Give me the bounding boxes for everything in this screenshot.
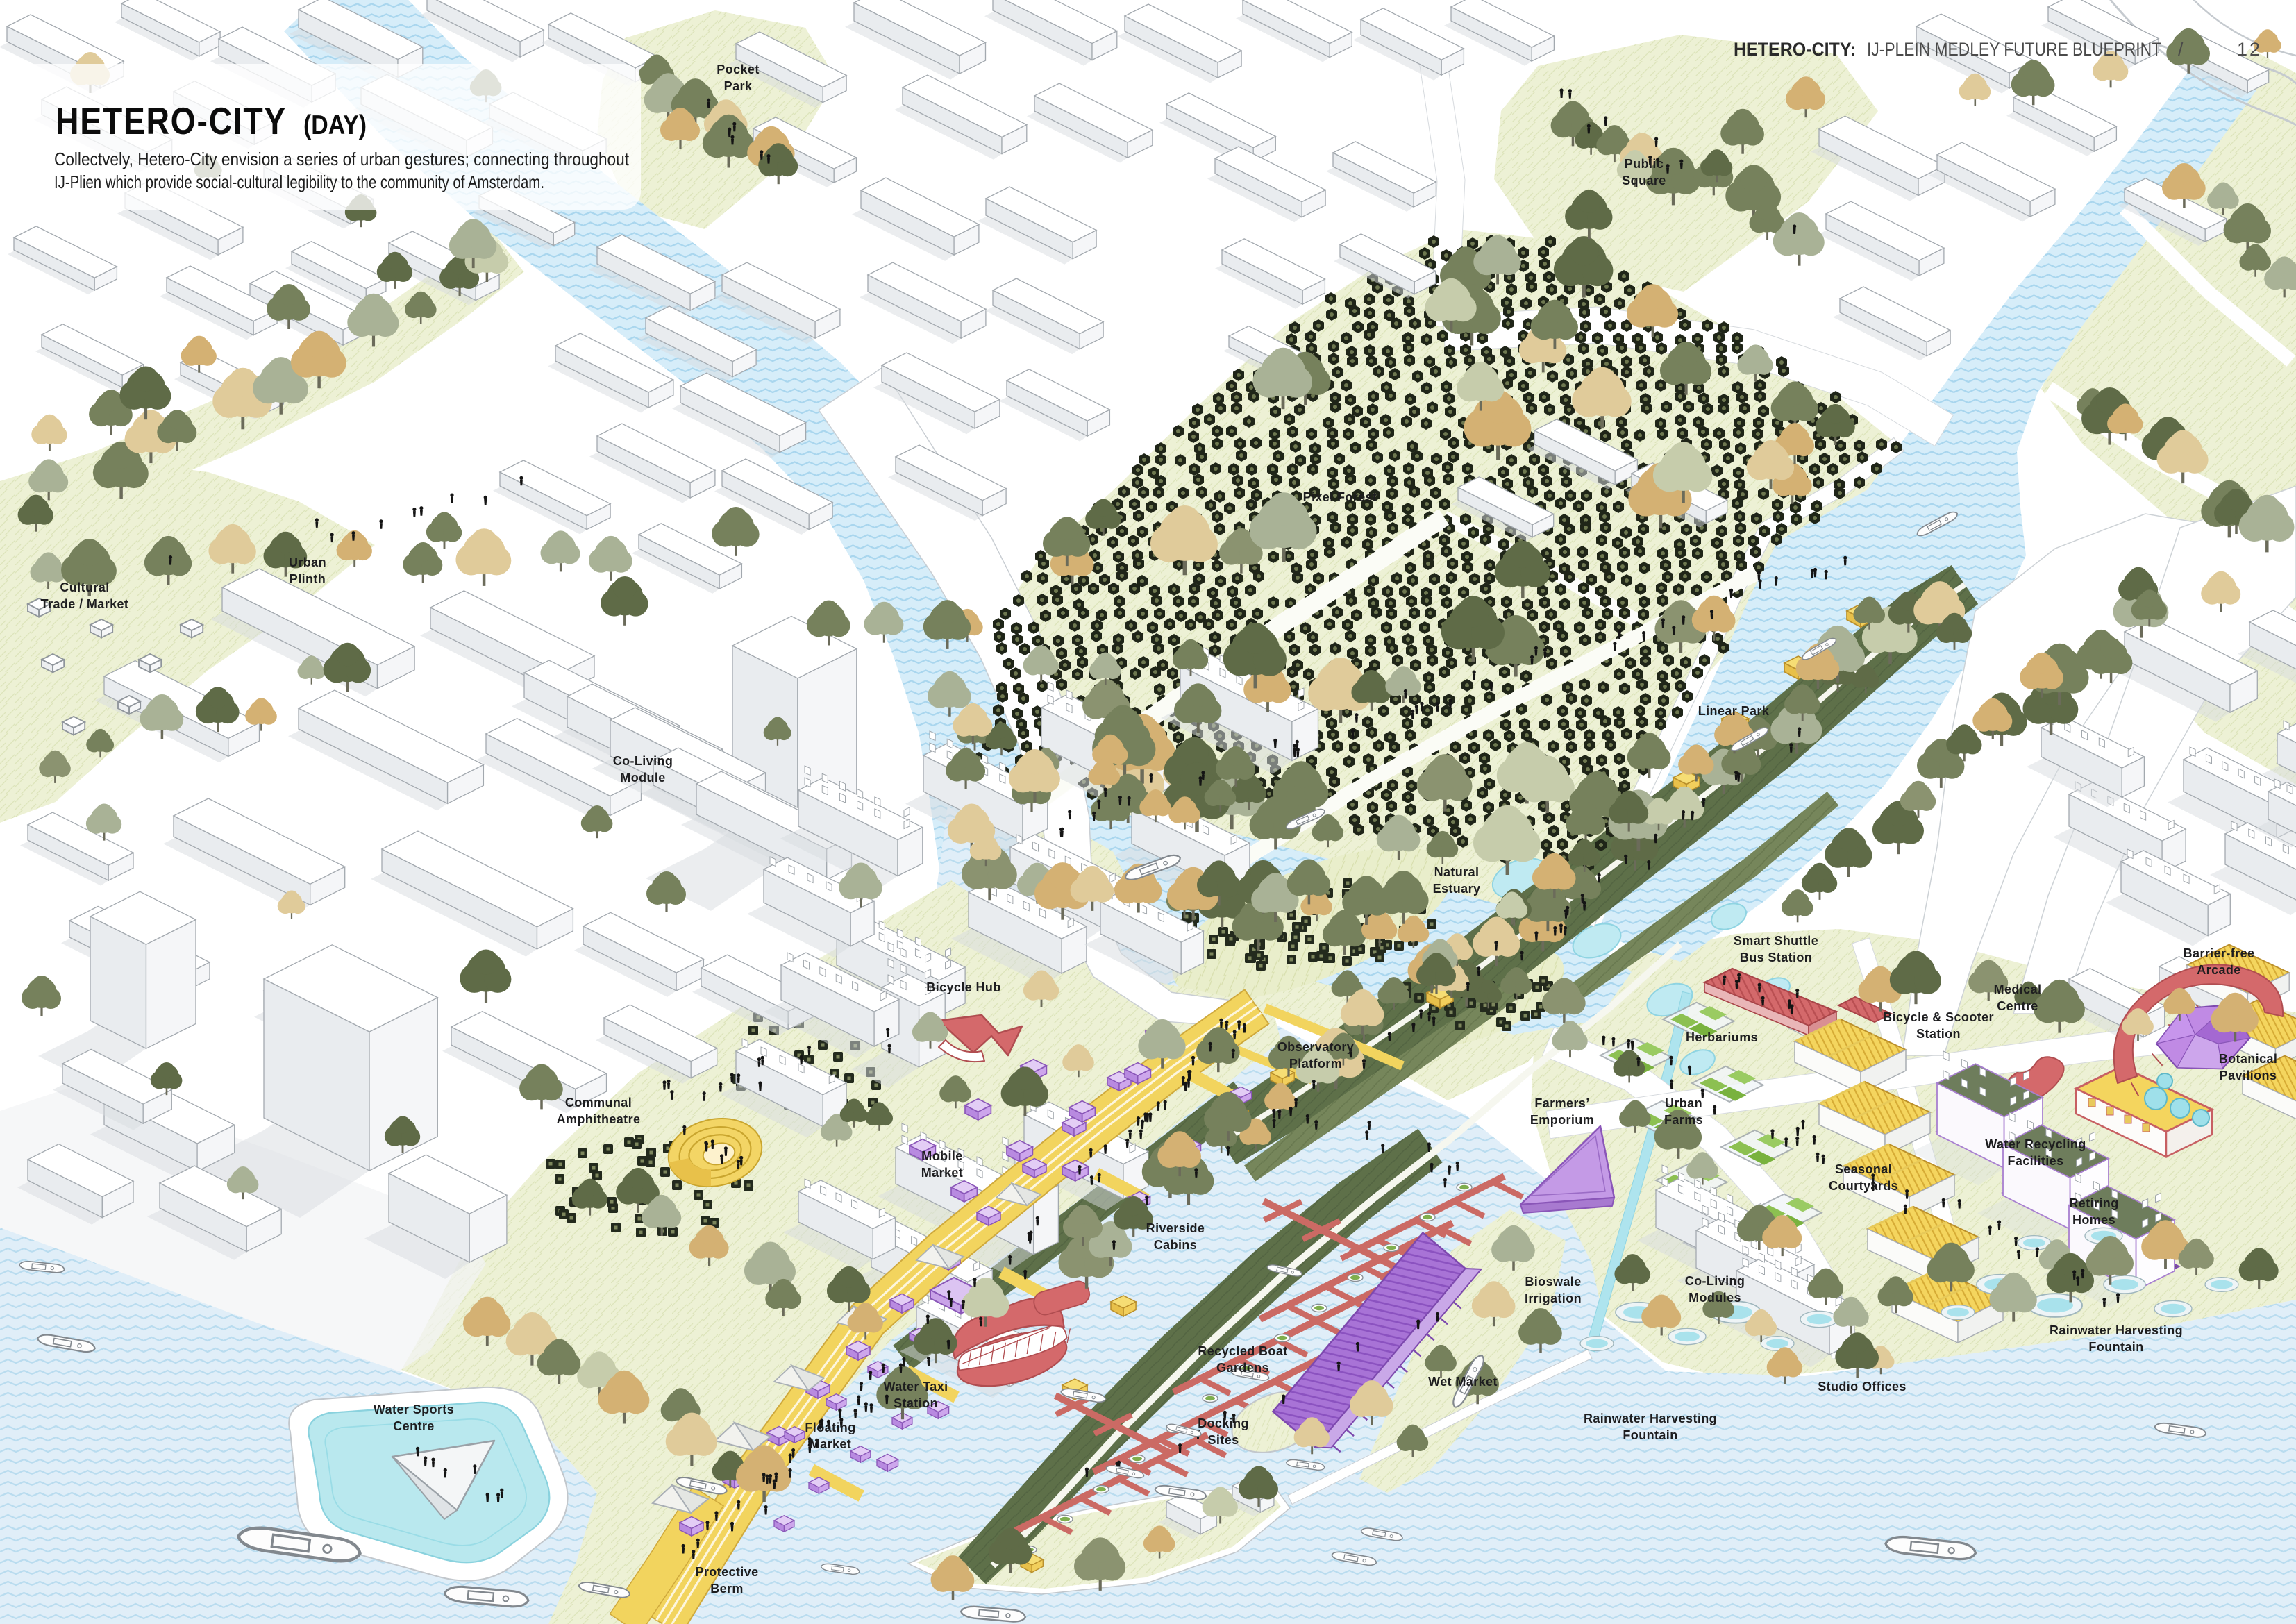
svg-text:IJ-Plien which provide social-: IJ-Plien which provide social-cultural l…: [54, 171, 544, 192]
svg-text:Studio Offices: Studio Offices: [1818, 1380, 1907, 1393]
svg-text:12: 12: [2237, 39, 2262, 60]
svg-text:Linear Park: Linear Park: [1698, 704, 1770, 718]
svg-text:Bicycle Hub: Bicycle Hub: [926, 980, 1000, 994]
svg-text:Wet Market: Wet Market: [1428, 1375, 1498, 1389]
svg-text:Herbariums: Herbariums: [1686, 1030, 1758, 1044]
svg-text:/: /: [2178, 39, 2184, 60]
svg-text:(DAY): (DAY): [303, 110, 367, 140]
svg-text:IJ-PLEIN MEDLEY FUTURE BLUEPRI: IJ-PLEIN MEDLEY FUTURE BLUEPRINT: [1867, 39, 2161, 60]
svg-text:Pixel Forest: Pixel Forest: [1303, 490, 1377, 504]
svg-text:HETERO-CITY:: HETERO-CITY:: [1734, 39, 1856, 60]
svg-text:HETERO-CITY: HETERO-CITY: [56, 99, 287, 142]
svg-text:Collectvely, Hetero-City envis: Collectvely, Hetero-City envision a seri…: [54, 149, 630, 169]
